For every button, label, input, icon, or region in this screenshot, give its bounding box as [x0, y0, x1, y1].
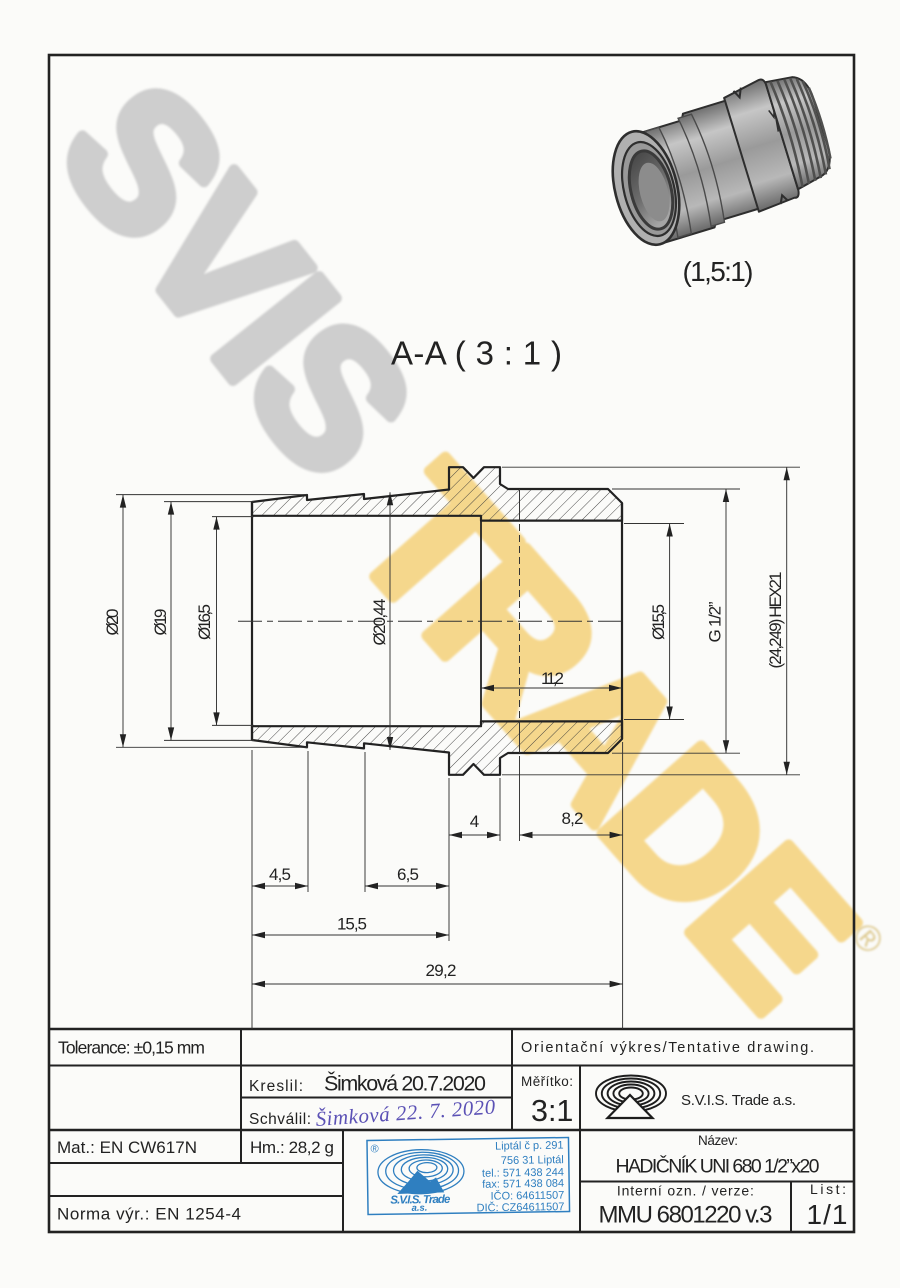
svg-text:Liptál č p. 291: Liptál č p. 291: [495, 1140, 564, 1153]
svg-text:Ø16,5: Ø16,5: [195, 604, 214, 640]
svg-text:Ø15,5: Ø15,5: [649, 604, 668, 640]
svg-text:DIČ: CZ64611507: DIČ: CZ64611507: [477, 1200, 565, 1214]
svg-text:a.s.: a.s.: [411, 1203, 427, 1214]
svg-text:4,5: 4,5: [269, 865, 291, 884]
svg-text:(1,5:1): (1,5:1): [683, 256, 754, 287]
svg-text:11,2: 11,2: [541, 669, 564, 688]
svg-text:Mat.: EN CW617N: Mat.: EN CW617N: [57, 1138, 197, 1157]
svg-text:15,5: 15,5: [337, 915, 367, 934]
svg-text:Schválil:: Schválil:: [249, 1111, 311, 1128]
svg-text:4: 4: [470, 812, 479, 831]
svg-text:3:1: 3:1: [531, 1094, 573, 1128]
svg-text:Kreslil:: Kreslil:: [249, 1078, 303, 1095]
svg-text:G 1/2”: G 1/2”: [706, 601, 725, 642]
svg-text:29,2: 29,2: [426, 961, 457, 980]
svg-text:6,5: 6,5: [397, 865, 419, 884]
svg-text:MMU 6801220 v.3: MMU 6801220 v.3: [599, 1202, 773, 1229]
svg-text:S.V.I.S. Trade a.s.: S.V.I.S. Trade a.s.: [681, 1092, 796, 1109]
svg-text:Orientační výkres/Tentative dr: Orientační výkres/Tentative drawing.: [521, 1040, 814, 1056]
svg-text:SVIS: SVIS: [20, 45, 453, 512]
svg-text:756 31 Liptál: 756 31 Liptál: [501, 1154, 564, 1167]
svg-text:Interní ozn. / verze:: Interní ozn. / verze:: [617, 1183, 754, 1199]
svg-text:1/1: 1/1: [807, 1199, 848, 1230]
svg-text:®: ®: [371, 1143, 379, 1155]
svg-text:Měřítko:: Měřítko:: [521, 1074, 573, 1089]
svg-text:Norma výr.: EN 1254-4: Norma výr.: EN 1254-4: [57, 1205, 241, 1224]
svg-text:Ø20,44: Ø20,44: [370, 599, 389, 646]
svg-text:HADIČNÍK UNI 680 1/2”x20: HADIČNÍK UNI 680 1/2”x20: [616, 1155, 820, 1178]
svg-text:Šimková 22. 7. 2020: Šimková 22. 7. 2020: [315, 1094, 497, 1131]
svg-text:8,2: 8,2: [562, 809, 584, 828]
svg-text:A-A ( 3 : 1 ): A-A ( 3 : 1 ): [391, 335, 562, 372]
svg-text:Hm.: 28,2 g: Hm.: 28,2 g: [250, 1138, 334, 1157]
svg-text:List:: List:: [810, 1181, 846, 1197]
svg-text:Šimková 20.7.2020: Šimková 20.7.2020: [324, 1071, 486, 1096]
svg-text:Název:: Název:: [698, 1133, 738, 1148]
svg-text:Ø19: Ø19: [151, 609, 170, 636]
svg-text:(24,249) HEX21: (24,249) HEX21: [766, 572, 785, 669]
svg-text:Ø20: Ø20: [103, 609, 122, 636]
svg-text:Tolerance: ±0,15 mm: Tolerance: ±0,15 mm: [58, 1038, 205, 1058]
